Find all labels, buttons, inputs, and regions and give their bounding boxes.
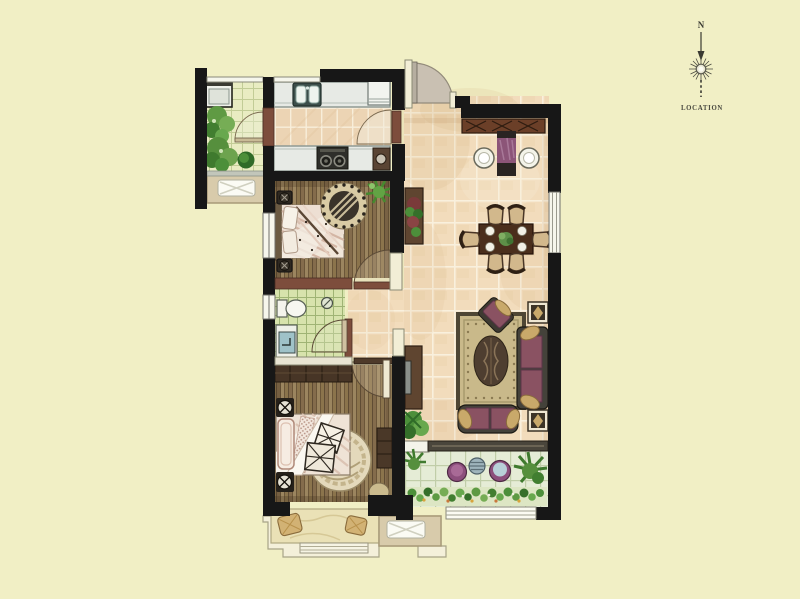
svg-text:N: N: [698, 20, 705, 30]
svg-text:LOCATION: LOCATION: [681, 105, 723, 112]
